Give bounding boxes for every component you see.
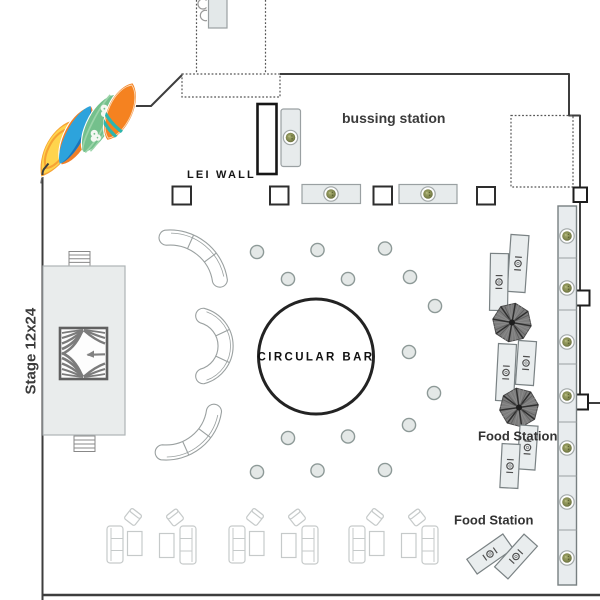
svg-text:bussing station: bussing station: [342, 110, 445, 126]
svg-text:LEI WALL: LEI WALL: [187, 169, 256, 181]
svg-text:Food Station: Food Station: [454, 513, 533, 528]
svg-text:CIRCULAR BAR: CIRCULAR BAR: [258, 352, 375, 364]
svg-text:Stage 12x24: Stage 12x24: [23, 307, 40, 394]
svg-text:Food Station: Food Station: [478, 429, 557, 444]
